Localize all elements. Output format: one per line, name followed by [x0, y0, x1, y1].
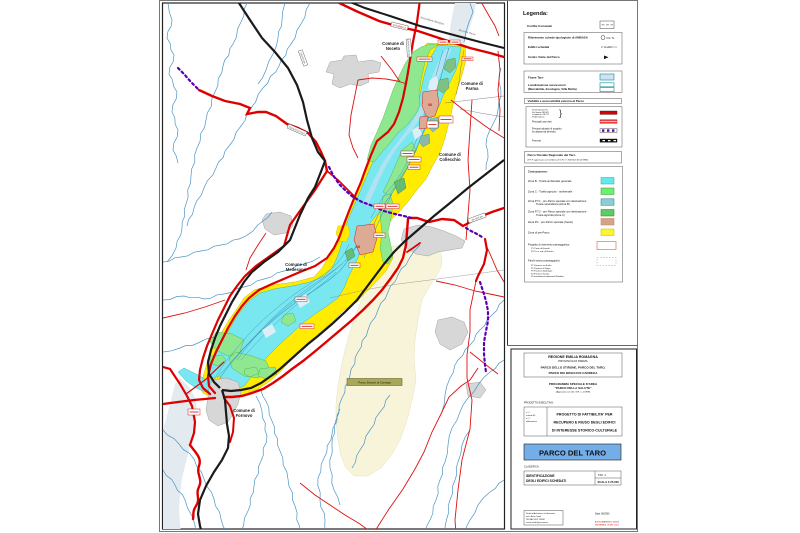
svg-text:Progetto di intervento paesagg: Progetto di intervento paesaggistico: [528, 243, 570, 247]
svg-text:TAV. 1: TAV. 1 [598, 473, 606, 477]
svg-text:IDENTIFICAZIONE: IDENTIFICAZIONE [526, 474, 555, 478]
svg-text:Zona C - Tutela agricolo - amb: Zona C - Tutela agricolo - ambientale [528, 190, 573, 194]
svg-text:Legenda:: Legenda: [523, 11, 548, 17]
svg-text:PARCO DEL TARO: PARCO DEL TARO [539, 449, 606, 458]
svg-text:Zona PC - pre-Parco speciale (: Zona PC - pre-Parco speciale (Santo) [528, 220, 573, 224]
svg-text:(in adiacenza itinerari): (in adiacenza itinerari) [532, 130, 556, 133]
svg-text:N1 / N: N1 / N [607, 36, 614, 40]
svg-text:Zonizzazione:: Zonizzazione: [528, 170, 548, 174]
svg-text:TEL/FAX 0521 234567: TEL/FAX 0521 234567 [526, 518, 545, 521]
svg-text:P4 Provincia Giarola: P4 Provincia Giarola [531, 273, 550, 275]
svg-text:P1 Corte di Giarola: P1 Corte di Giarola [531, 247, 550, 250]
svg-text:Zona di pre-Parco: Zona di pre-Parco [528, 231, 550, 235]
svg-text:DELIBERA N. 48 DEL 21/02: DELIBERA N. 48 DEL 21/02 [595, 524, 619, 527]
svg-text:Parma: Parma [466, 86, 479, 91]
svg-text:Edifici schedati: Edifici schedati [528, 45, 549, 49]
svg-text:elaborazioni: elaborazioni [526, 421, 537, 423]
svg-text:P3 Provincia Madregolo: P3 Provincia Madregolo [531, 271, 553, 273]
svg-text:(P.T.P. approvato con Delibera: (P.T.P. approvato con Delibera di G.R. n… [528, 159, 589, 162]
svg-text:Collecchio: Collecchio [439, 157, 461, 162]
svg-text:PROGETTO DI FATTIBILITA' PER: PROGETTO DI FATTIBILITA' PER [557, 413, 613, 417]
svg-text:SCALA 1:25.000: SCALA 1:25.000 [598, 480, 620, 484]
svg-text:Confini Comunali: Confini Comunali [527, 24, 552, 28]
svg-text:Medesano: Medesano [286, 267, 307, 272]
svg-text:CLASSIFICA:: CLASSIFICA: [524, 466, 540, 469]
svg-text:Fiume Taro: Fiume Taro [528, 76, 544, 80]
svg-text:(Mercabilde, Ecodogna, Villa M: (Mercabilde, Ecodogna, Villa Motta) [528, 87, 577, 91]
svg-text:arch. Anna Ceretti: arch. Anna Ceretti [526, 515, 542, 518]
svg-text:schede 63: schede 63 [526, 415, 536, 417]
svg-text:Viabilità e accessibilità este: Viabilità e accessibilità esterna al Par… [528, 99, 585, 103]
svg-text:P1 Provincia via Emilia: P1 Provincia via Emilia [531, 265, 552, 267]
svg-text:PARCO DEI BOSCHI DI CARREGA: PARCO DEI BOSCHI DI CARREGA [549, 371, 599, 375]
svg-text:Ferrovia: Ferrovia [532, 140, 541, 143]
svg-text:AGGIORNAMENTO 10/2001: AGGIORNAMENTO 10/2001 [595, 521, 619, 524]
svg-text:P2 Provincia di Tappa: P2 Provincia di Tappa [531, 268, 551, 270]
svg-text:P5 Insediamenti ambientali M: P5 Insediamenti ambientali Mondana [531, 275, 565, 278]
svg-text:PARCO DELLO STIRONE, PARCO DEL: PARCO DELLO STIRONE, PARCO DEL TARO, [541, 366, 606, 370]
svg-text:DI INTERESSE STORICO-CULTURALE: DI INTERESSE STORICO-CULTURALE [552, 429, 618, 433]
svg-text:Parco Boschi di Carrega: Parco Boschi di Carrega [358, 381, 391, 385]
svg-text:RECUPERO E RIUSO DEGLI EDIFICI: RECUPERO E RIUSO DEGLI EDIFICI [554, 421, 616, 425]
svg-text:Noceto: Noceto [386, 46, 401, 51]
svg-text:DEGLI EDIFICI SCHEDATI: DEGLI EDIFICI SCHEDATI [526, 479, 566, 483]
svg-text:Parco Fluviale Regionale del T: Parco Fluviale Regionale del Taro [528, 153, 576, 157]
svg-text:Data: 06/2000: Data: 06/2000 [595, 513, 610, 516]
svg-text:Tutela naturalistica (Zona B): Tutela naturalistica (Zona B) [536, 202, 570, 206]
svg-text:e-mail studio@parcotaro.it: e-mail studio@parcotaro.it [526, 521, 549, 524]
svg-text:Fornovo: Fornovo [236, 413, 253, 418]
svg-text:Parchi storico-paesaggistici:: Parchi storico-paesaggistici: [528, 259, 561, 263]
svg-text:PROGETTO ESECUTIVO:: PROGETTO ESECUTIVO: [524, 402, 554, 405]
svg-text:Zona B - Tutela ambientale gen: Zona B - Tutela ambientale generale [528, 179, 572, 183]
svg-text:Principali assi viari: Principali assi viari [532, 121, 552, 124]
svg-text:PROVINCIA DI PARMA: PROVINCIA DI PARMA [558, 359, 587, 363]
svg-text:}: } [559, 108, 562, 118]
svg-text:"PARCO DELLA SALUTE": "PARCO DELLA SALUTE" [554, 386, 592, 390]
svg-text:n° di edifici = n: n° di edifici = n [601, 46, 617, 49]
svg-text:18: 18 [356, 245, 360, 249]
svg-text:P2 Tra e rete di Noceto: P2 Tra e rete di Noceto [531, 250, 554, 253]
svg-text:Studio di Architettura e Urban: Studio di Architettura e Urbanistica [526, 512, 556, 515]
svg-text:Riferimento schede tipologiche: Riferimento schede tipologiche di AMBASA [528, 36, 589, 40]
svg-text:Pedemontana: Pedemontana [532, 116, 545, 119]
svg-text:Centro Visite del Parco: Centro Visite del Parco [528, 55, 560, 59]
svg-text:(Approvato con del. G.R. n. 2/: (Approvato con del. G.R. n. 2/1999) [556, 390, 591, 393]
svg-text:06: 06 [428, 103, 432, 107]
svg-text:Tutela agricola (Zona C): Tutela agricola (Zona C) [536, 213, 565, 217]
